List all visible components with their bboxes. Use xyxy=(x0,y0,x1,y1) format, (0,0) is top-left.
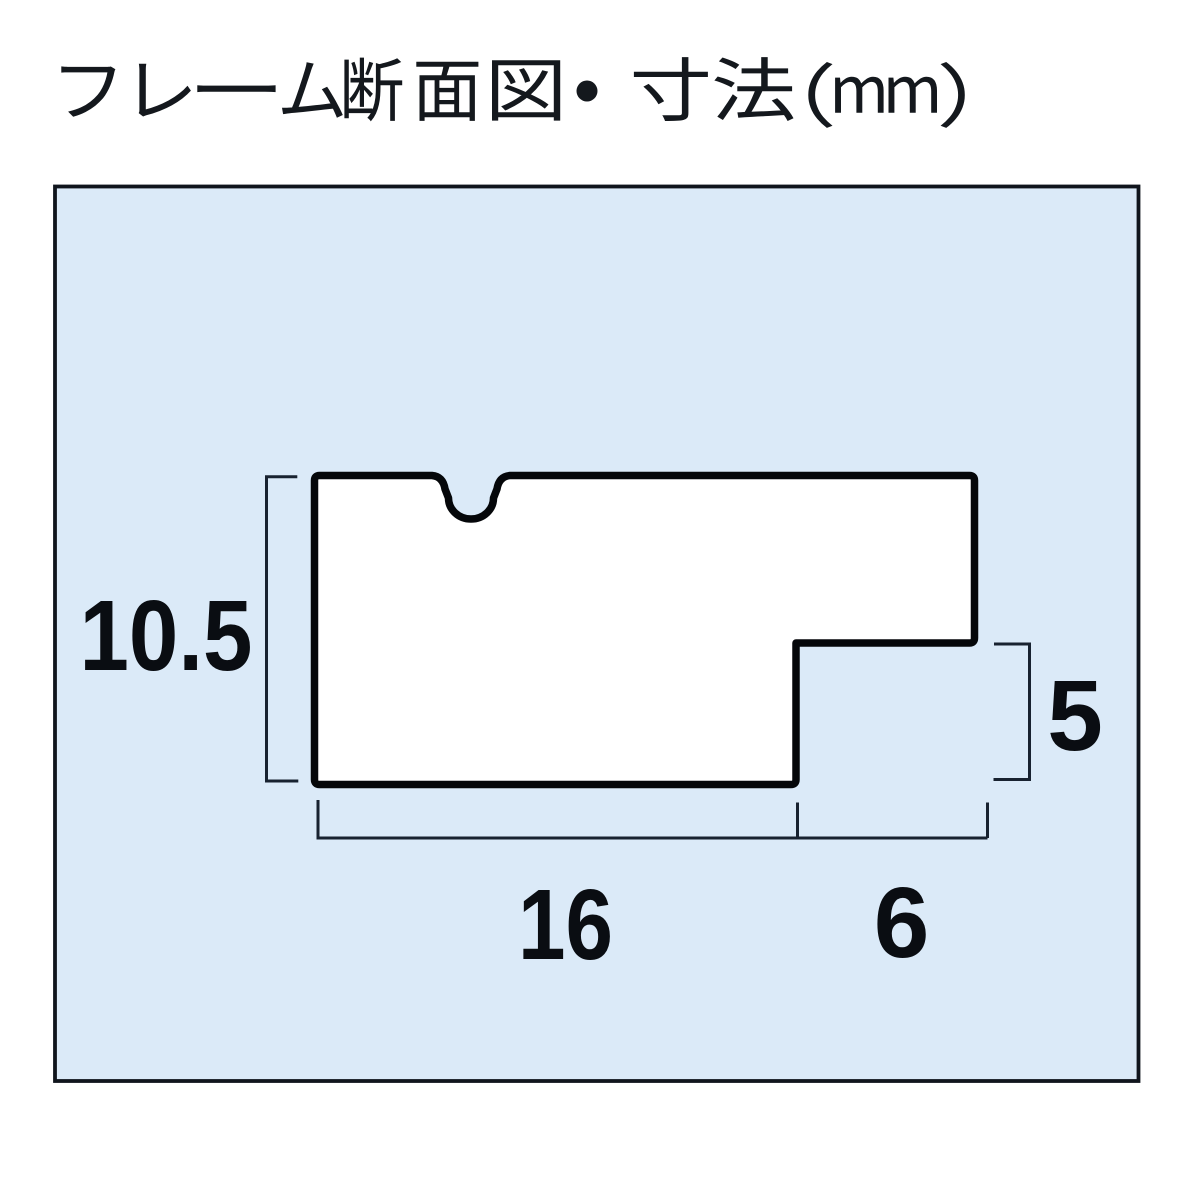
svg-text:5: 5 xyxy=(1047,660,1103,772)
svg-text:10.5: 10.5 xyxy=(80,580,253,692)
svg-text:6: 6 xyxy=(874,867,930,979)
svg-text:16: 16 xyxy=(518,869,613,981)
